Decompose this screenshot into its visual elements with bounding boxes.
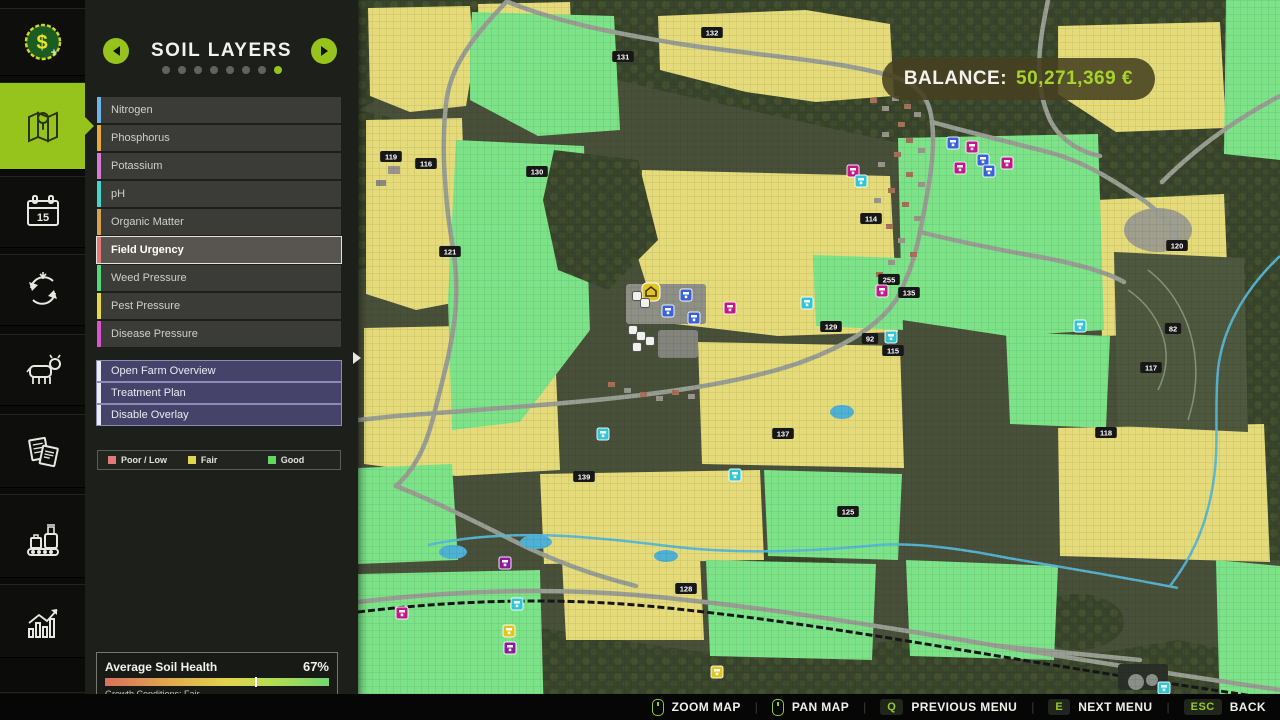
field-number: 137 (777, 430, 790, 439)
soil-layer-list: NitrogenPhosphorusPotassiumpHOrganic Mat… (97, 97, 341, 347)
poi-white-icon[interactable] (641, 299, 650, 308)
soil-layer-field-urgency[interactable]: Field Urgency (97, 237, 341, 263)
money-icon: $ + (21, 20, 65, 64)
map-icon (19, 102, 67, 150)
panel-collapse-arrow[interactable] (353, 352, 361, 364)
button-accent-bar (97, 383, 101, 403)
soil-layer-phosphorus[interactable]: Phosphorus (97, 125, 341, 151)
contracts-icon (19, 427, 67, 475)
calendar-icon: 15 (19, 188, 67, 236)
layer-label: Field Urgency (111, 244, 184, 256)
svg-text:+: + (50, 47, 56, 59)
legend-swatch (108, 456, 116, 464)
poi-cyan-icon[interactable] (1158, 682, 1170, 694)
layer-label: Phosphorus (111, 132, 170, 144)
treatment-plan-button[interactable]: Treatment Plan (97, 383, 341, 403)
legend-item: Poor / Low (98, 455, 178, 465)
control-back[interactable]: ESCBACK (1184, 699, 1266, 715)
sidebar-item-statistics[interactable] (0, 584, 85, 658)
poi-cyan-icon[interactable] (511, 598, 523, 610)
legend-item: Good (258, 455, 338, 465)
control-label: PAN MAP (792, 700, 849, 714)
page-dots (85, 66, 358, 74)
health-title: Average Soil Health (105, 660, 217, 674)
soil-layer-pest-pressure[interactable]: Pest Pressure (97, 293, 341, 319)
panel-actions: Open Farm OverviewTreatment PlanDisable … (97, 361, 341, 425)
map-legend: Poor / LowFairGood (97, 450, 341, 470)
layer-label: Organic Matter (111, 216, 184, 228)
sidebar-item-map[interactable] (0, 82, 85, 170)
page-dot (258, 66, 266, 74)
soil-health-box: Average Soil Health 67% Growth Condition… (96, 652, 338, 698)
field-number: 128 (680, 585, 693, 594)
sidebar-item-contracts[interactable] (0, 414, 85, 488)
page-dot (178, 66, 186, 74)
sidebar-item-crop-rotation[interactable] (0, 254, 85, 326)
game-screen: { "sidebar": { "items": [ {"id":"finance… (0, 0, 1280, 720)
button-accent-bar (97, 405, 101, 425)
disable-overlay-button[interactable]: Disable Overlay (97, 405, 341, 425)
mouse-icon (772, 699, 784, 716)
button-label: Open Farm Overview (111, 365, 216, 377)
production-icon (19, 512, 67, 560)
page-dot (274, 66, 282, 74)
poi-cyan-icon[interactable] (597, 428, 609, 440)
legend-item: Fair (178, 455, 258, 465)
cow-icon (19, 346, 67, 394)
button-accent-bar (97, 361, 101, 381)
layer-label: Nitrogen (111, 104, 153, 116)
legend-label: Poor / Low (121, 455, 167, 465)
poi-blue-icon[interactable] (688, 312, 700, 324)
panel-title: SOIL LAYERS (151, 40, 292, 62)
separator: | (1031, 700, 1034, 714)
layer-label: Potassium (111, 160, 162, 172)
poi-magenta-icon[interactable] (396, 607, 408, 619)
field-number: 131 (617, 53, 630, 62)
poi-magenta-icon[interactable] (966, 141, 978, 153)
sidebar-item-animals[interactable] (0, 334, 85, 406)
poi-blue-icon[interactable] (680, 289, 692, 301)
field-number: 130 (531, 168, 544, 177)
sidebar-item-calendar[interactable]: 15 (0, 176, 85, 248)
field-number: 82 (1169, 325, 1177, 334)
layer-label: Disease Pressure (111, 328, 198, 340)
field-number: 118 (1100, 429, 1112, 438)
sidebar-item-finances[interactable]: $ + (0, 8, 85, 76)
control-label: ZOOM MAP (672, 700, 741, 714)
legend-swatch (268, 456, 276, 464)
sidebar: $ + 15 (0, 0, 85, 720)
layer-color-bar (97, 209, 101, 235)
layer-color-bar (97, 237, 101, 263)
active-tab-notch (85, 117, 94, 135)
soil-layer-ph[interactable]: pH (97, 181, 341, 207)
soil-layer-organic-matter[interactable]: Organic Matter (97, 209, 341, 235)
field-number: 129 (825, 323, 838, 332)
control-label: BACK (1230, 700, 1266, 714)
poi-white-icon[interactable] (633, 343, 642, 352)
page-dot (242, 66, 250, 74)
button-label: Treatment Plan (111, 387, 186, 399)
page-dot (210, 66, 218, 74)
poi-white-icon[interactable] (637, 332, 646, 341)
field-number: 135 (903, 289, 916, 298)
balance-value: 50,271,369 € (1016, 68, 1133, 90)
next-layer-button[interactable] (311, 38, 337, 64)
layer-color-bar (97, 125, 101, 151)
control-zoom-map[interactable]: ZOOM MAP (652, 699, 741, 716)
soil-layer-weed-pressure[interactable]: Weed Pressure (97, 265, 341, 291)
control-previous-menu[interactable]: QPREVIOUS MENU (880, 699, 1017, 715)
poi-magenta-icon[interactable] (876, 285, 888, 297)
control-label: PREVIOUS MENU (911, 700, 1017, 714)
svg-text:15: 15 (36, 212, 48, 224)
soil-layer-nitrogen[interactable]: Nitrogen (97, 97, 341, 123)
svg-text:$: $ (36, 32, 47, 54)
poi-cyan-icon[interactable] (885, 331, 897, 343)
crop-rotation-icon (19, 266, 67, 314)
legend-label: Fair (201, 455, 218, 465)
health-marker (255, 677, 257, 687)
poi-magenta-icon[interactable] (724, 302, 736, 314)
field-number: 132 (706, 29, 719, 38)
layer-label: Weed Pressure (111, 272, 187, 284)
page-dot (162, 66, 170, 74)
field-number: 92 (866, 335, 874, 344)
right-arrow-icon (321, 46, 328, 56)
field-number: 115 (887, 347, 899, 356)
layer-label: Pest Pressure (111, 300, 180, 312)
control-next-menu[interactable]: ENEXT MENU (1048, 699, 1152, 715)
key-badge-esc: ESC (1184, 699, 1222, 715)
poi-yellow-icon[interactable] (711, 666, 723, 678)
layer-color-bar (97, 321, 101, 347)
poi-cyan-icon[interactable] (801, 297, 813, 309)
field-number: 117 (1145, 364, 1157, 373)
health-gradient-bar (105, 678, 329, 686)
mouse-icon (652, 699, 664, 716)
key-badge-q: Q (880, 699, 903, 715)
field-number: 114 (865, 215, 878, 224)
separator: | (1166, 700, 1169, 714)
field-number: 116 (420, 160, 432, 169)
poi-blue-icon[interactable] (662, 305, 674, 317)
sidebar-item-production[interactable] (0, 494, 85, 578)
button-label: Disable Overlay (111, 409, 189, 421)
poi-cyan-icon[interactable] (855, 175, 867, 187)
layer-color-bar (97, 181, 101, 207)
soil-layers-panel: SOIL LAYERS NitrogenPhosphorusPotassiump… (85, 0, 358, 720)
field-number: 119 (385, 153, 397, 162)
poi-cyan-icon[interactable] (1074, 320, 1086, 332)
soil-layer-disease-pressure[interactable]: Disease Pressure (97, 321, 341, 347)
poi-purple-icon[interactable] (504, 642, 516, 654)
poi-purple-icon[interactable] (499, 557, 511, 569)
health-value: 67% (303, 659, 329, 674)
legend-label: Good (281, 455, 305, 465)
field-number: 139 (578, 473, 591, 482)
poi-cyan-icon[interactable] (729, 469, 741, 481)
control-label: NEXT MENU (1078, 700, 1152, 714)
poi-blue-icon[interactable] (983, 165, 995, 177)
map-canvas[interactable]: 1321311191161301211142551351299211512082… (358, 0, 1280, 720)
layer-color-bar (97, 153, 101, 179)
balance-label: BALANCE: (904, 68, 1007, 90)
poi-magenta-icon[interactable] (954, 162, 966, 174)
page-dot (226, 66, 234, 74)
legend-swatch (188, 456, 196, 464)
parcel-grid (358, 0, 1280, 720)
balance-pill: BALANCE: 50,271,369 € (882, 58, 1155, 100)
separator: | (755, 700, 758, 714)
separator: | (863, 700, 866, 714)
page-dot (194, 66, 202, 74)
poi-blue-icon[interactable] (947, 137, 959, 149)
field-number: 125 (842, 508, 855, 517)
layer-color-bar (97, 293, 101, 319)
key-badge-e: E (1048, 699, 1070, 715)
bottom-bar: ZOOM MAP|PAN MAP|QPREVIOUS MENU|ENEXT ME… (0, 694, 1280, 720)
poi-yellow-icon[interactable] (503, 625, 515, 637)
field-number: 120 (1171, 242, 1184, 251)
statistics-icon (19, 597, 67, 645)
layer-color-bar (97, 97, 101, 123)
control-pan-map[interactable]: PAN MAP (772, 699, 849, 716)
soil-layer-potassium[interactable]: Potassium (97, 153, 341, 179)
field-number: 255 (883, 276, 896, 285)
poi-blue-icon[interactable] (977, 154, 989, 166)
field-number: 121 (444, 248, 457, 257)
poi-magenta-icon[interactable] (1001, 157, 1013, 169)
poi-white-icon[interactable] (633, 292, 642, 301)
open-farm-overview-button[interactable]: Open Farm Overview (97, 361, 341, 381)
map-area[interactable]: 1321311191161301211142551351299211512082… (358, 0, 1280, 720)
layer-label: pH (111, 188, 125, 200)
poi-white-icon[interactable] (646, 337, 655, 346)
layer-color-bar (97, 265, 101, 291)
